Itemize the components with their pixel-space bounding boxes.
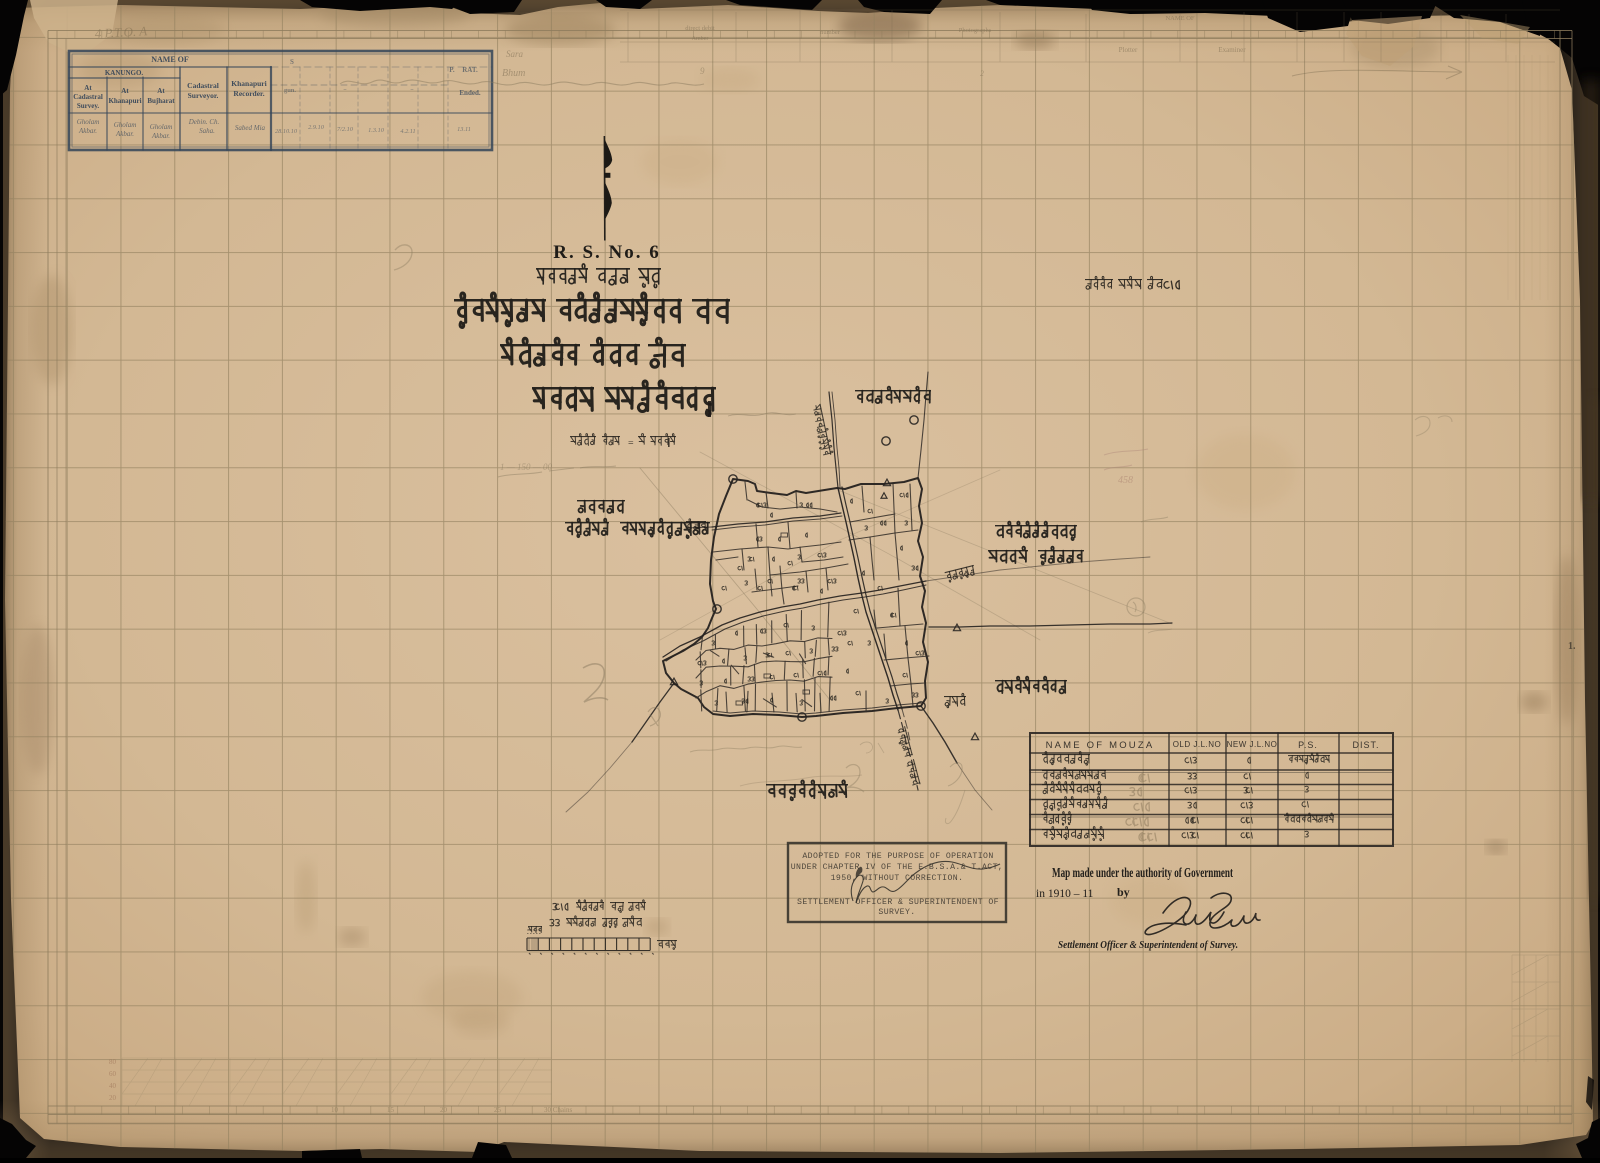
svg-text:RAT.: RAT. (462, 66, 478, 74)
svg-text:Cadastral: Cadastral (187, 81, 219, 90)
svg-text:1.: 1. (1568, 641, 1576, 652)
svg-text:Saha.: Saha. (199, 127, 215, 135)
svg-text:OLD J.L.NO: OLD J.L.NO (1173, 740, 1222, 749)
svg-text:NAME OF: NAME OF (1165, 15, 1194, 22)
svg-text:NEW J.L.NO: NEW J.L.NO (1227, 740, 1278, 749)
svg-text:9: 9 (700, 66, 705, 76)
svg-text:Recorder.: Recorder. (233, 89, 264, 98)
svg-text:Bhum: Bhum (502, 68, 525, 79)
svg-text:by: by (1117, 885, 1130, 899)
svg-text:1.3.10: 1.3.10 (368, 127, 385, 134)
svg-text:20: 20 (109, 1094, 117, 1102)
svg-text:Ended.: Ended. (459, 89, 480, 97)
svg-text:20: 20 (440, 1106, 448, 1114)
svg-text:2.9.10: 2.9.10 (308, 124, 325, 131)
svg-text:Akbar.: Akbar. (78, 127, 97, 135)
svg-text:Map made under the authority o: Map made under the authority of Governme… (1052, 865, 1233, 880)
svg-text:2: 2 (980, 69, 984, 78)
svg-text:P.: P. (449, 66, 455, 74)
svg-text:Gholam: Gholam (150, 123, 173, 131)
svg-text:..: .. (410, 85, 414, 92)
svg-text:Gholam: Gholam (114, 121, 137, 129)
svg-text:Surveyor.: Surveyor. (188, 91, 219, 100)
svg-text:4.2.11: 4.2.11 (400, 128, 415, 135)
svg-text:Settlement Officer & Superinte: Settlement Officer & Superintendent of S… (1058, 940, 1238, 951)
svg-text:Sabed Mia: Sabed Mia (235, 124, 266, 132)
svg-text:SETTLEMENT OFFICER & SUPERINTE: SETTLEMENT OFFICER & SUPERINTENDENT OF (797, 898, 999, 907)
svg-text:Examiner: Examiner (1218, 46, 1246, 54)
svg-text:P.S.: P.S. (1298, 740, 1318, 750)
svg-text:direct debit: direct debit (685, 25, 715, 32)
svg-text:Gholam: Gholam (77, 118, 100, 126)
svg-text:DIST.: DIST. (1352, 740, 1379, 750)
svg-text:NAME OF: NAME OF (151, 55, 189, 64)
svg-text:15: 15 (387, 1106, 395, 1114)
svg-text:4 P.T.O. A: 4 P.T.O. A (94, 23, 147, 41)
svg-text:Sara: Sara (506, 49, 524, 59)
svg-text:S: S (290, 58, 294, 66)
svg-text:SURVEY.: SURVEY. (878, 908, 915, 917)
svg-text:At: At (121, 87, 129, 95)
svg-text:28.10.10: 28.10.10 (275, 128, 298, 135)
svg-text:25: 25 (494, 1106, 502, 1114)
svg-text:Amber: Amber (692, 36, 709, 42)
svg-text:=: = (628, 438, 634, 449)
svg-text:Khanapuri: Khanapuri (108, 97, 141, 105)
svg-text:KANUNGO.: KANUNGO. (105, 69, 144, 77)
svg-text:gun.: gun. (284, 87, 296, 94)
svg-text:10: 10 (331, 1106, 339, 1114)
svg-text:Akbar.: Akbar. (151, 132, 170, 140)
svg-text:Bujharat: Bujharat (147, 97, 175, 105)
svg-text:30 Chains: 30 Chains (544, 1106, 572, 1114)
svg-text:1 — 150 — 00: 1 — 150 — 00 (500, 462, 553, 472)
svg-text:At: At (157, 87, 165, 95)
svg-text:Survey.: Survey. (77, 102, 100, 110)
svg-text:Khanapuri: Khanapuri (231, 79, 266, 88)
svg-text:80: 80 (109, 1058, 117, 1066)
svg-text:458: 458 (1118, 475, 1133, 486)
svg-text:1950, WITHOUT CORRECTION.: 1950, WITHOUT CORRECTION. (831, 874, 964, 883)
svg-text:40: 40 (109, 1082, 117, 1090)
svg-text:NAME OF MOUZA: NAME OF MOUZA (1046, 740, 1155, 751)
svg-text:13.11: 13.11 (457, 126, 471, 133)
svg-text:Photographs: Photographs (959, 27, 992, 34)
svg-text:Plotter: Plotter (1119, 46, 1138, 54)
svg-text:Akbar.: Akbar. (115, 130, 134, 138)
svg-text:in 1910 – 11: in 1910 – 11 (1036, 888, 1094, 900)
svg-text:ADOPTED FOR THE PURPOSE OF OPE: ADOPTED FOR THE PURPOSE OF OPERATION (802, 852, 993, 861)
svg-text:At: At (84, 84, 92, 92)
svg-text:..: .. (343, 85, 347, 92)
svg-text:Debin. Ch.: Debin. Ch. (188, 118, 220, 126)
svg-text:60: 60 (109, 1070, 117, 1078)
svg-text:7/2.10: 7/2.10 (337, 126, 354, 133)
svg-text:R. S. No. 6: R. S. No. 6 (553, 242, 661, 263)
svg-text:Cadastral: Cadastral (73, 93, 103, 101)
svg-text:number: number (820, 29, 841, 36)
